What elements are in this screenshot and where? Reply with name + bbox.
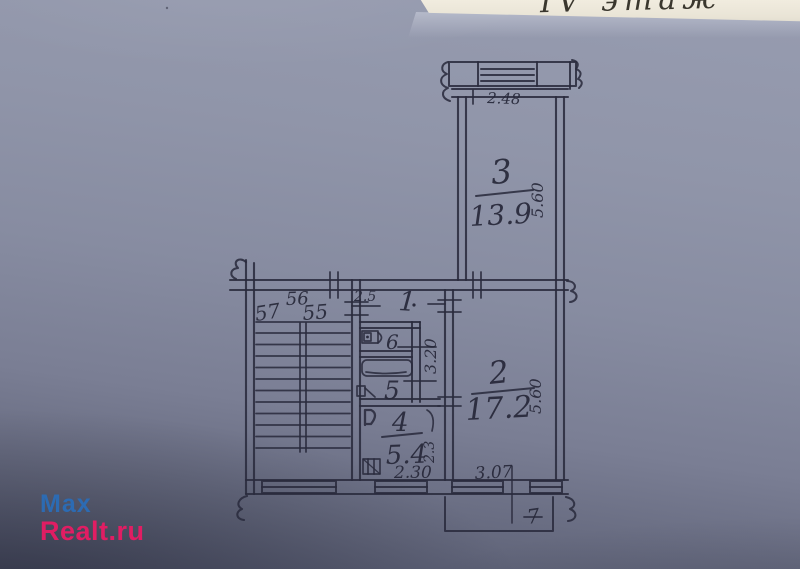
room6-number-label: 6 bbox=[386, 330, 399, 354]
room4-side-dim-label: 2.3 bbox=[422, 441, 438, 464]
staircase bbox=[256, 322, 350, 452]
hall-width-dim-label: 2.5 bbox=[353, 289, 376, 305]
balcony-railing-hatch bbox=[481, 69, 534, 81]
watermark: Max Realt.ru bbox=[40, 492, 145, 545]
room2-number-label: 2 bbox=[486, 354, 510, 392]
room5-number-label: 5 bbox=[384, 376, 400, 405]
room3-number-label: 3 bbox=[489, 151, 513, 192]
apartment-number-55: 55 bbox=[302, 299, 329, 325]
photo-speck bbox=[166, 7, 168, 9]
stair-stringer bbox=[300, 323, 306, 452]
stair-treads bbox=[256, 333, 350, 448]
door-symbol bbox=[365, 410, 375, 425]
floor-plan-drawing: 2.48 3 13.9 5.60 56 55 57 2.5 1 6 5 3.20… bbox=[0, 0, 800, 569]
toilet-icon bbox=[362, 331, 382, 343]
watermark-realt: Realt.ru bbox=[40, 518, 145, 546]
room4-width-dim-label: 2.30 bbox=[393, 463, 432, 483]
balcony-top-dim-label: 2.48 bbox=[486, 89, 521, 108]
door-swing bbox=[427, 410, 433, 431]
room1-number-label: 1 bbox=[398, 286, 417, 318]
watermark-max: Max bbox=[40, 492, 145, 518]
wall-break-hook bbox=[567, 281, 577, 302]
room3-area-label: 13.9 bbox=[469, 197, 533, 233]
wall-break-hook bbox=[231, 260, 246, 279]
wall-break-hook bbox=[237, 496, 247, 520]
bath-block-depth-label: 3.20 bbox=[421, 338, 440, 374]
bathtub-icon bbox=[362, 360, 412, 376]
room4-number-label: 4 bbox=[391, 408, 409, 438]
room2-width-dim-label: 3.07 bbox=[474, 462, 513, 484]
balcony-bottom-mark-label: 7 bbox=[525, 503, 541, 529]
wall-break-hook bbox=[566, 497, 575, 521]
scanned-floor-plan-photo: IV этаж bbox=[0, 0, 800, 569]
room3-depth-label: 5.60 bbox=[528, 182, 547, 218]
apartment-number-57: 57 bbox=[253, 298, 282, 326]
room2-depth-label: 5.60 bbox=[526, 378, 545, 414]
stove-icon bbox=[363, 459, 380, 474]
room2-area-label: 17.2 bbox=[465, 390, 534, 428]
